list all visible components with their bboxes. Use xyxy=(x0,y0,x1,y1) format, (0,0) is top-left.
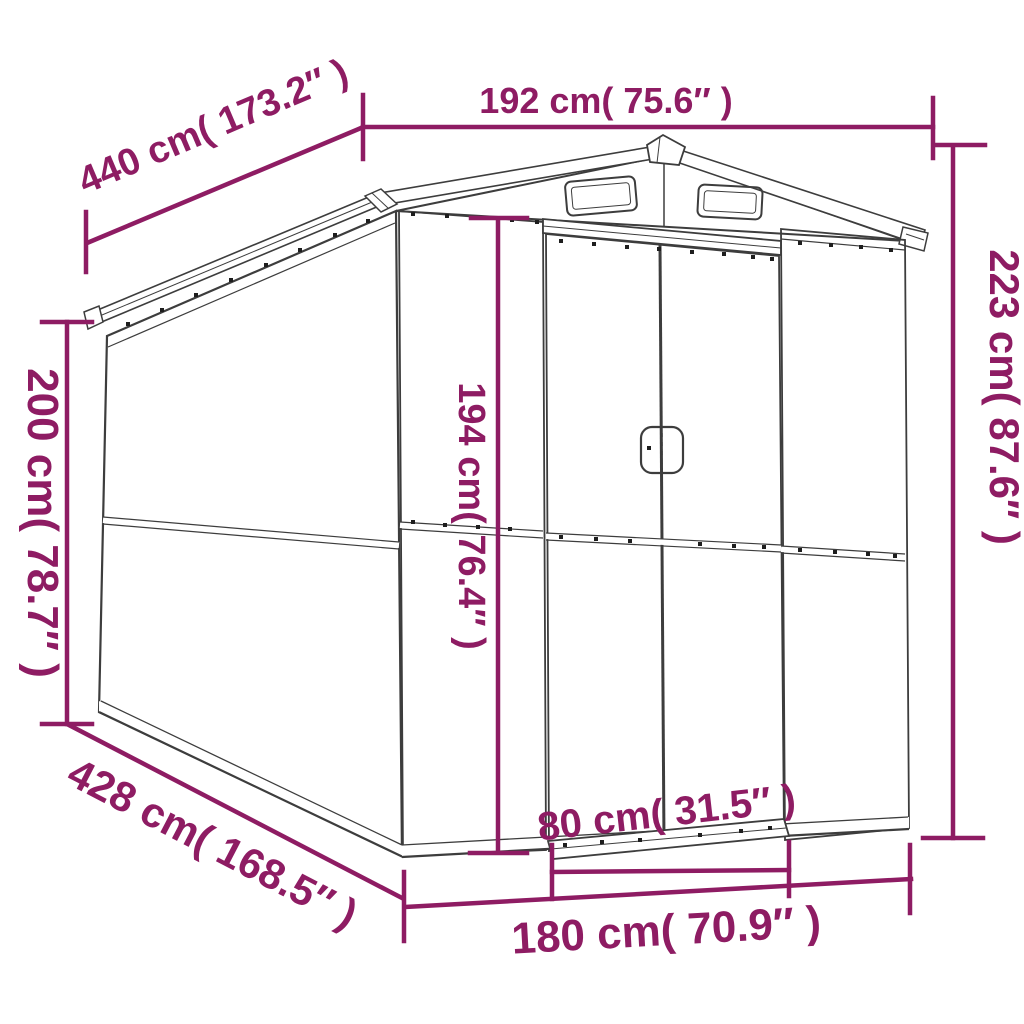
sliding-doors xyxy=(546,234,784,851)
back-eave-cap xyxy=(84,306,103,329)
shed-side-wall xyxy=(99,211,402,856)
label-base-length: 428 cm( 168.5″ ) xyxy=(60,749,365,938)
label-wall-height: 200 cm( 78.7″ ) xyxy=(18,368,67,678)
front-wall-right-section xyxy=(781,229,909,840)
dimension-overall-height: 223 cm( 87.6″ ) xyxy=(923,145,1024,838)
shed-drawing xyxy=(84,135,928,859)
label-base-width: 180 cm( 70.9″ ) xyxy=(510,897,822,963)
label-door-height: 194 cm( 76.4″ ) xyxy=(450,382,492,649)
label-roof-width-top: 192 cm( 75.6″ ) xyxy=(479,80,732,121)
label-roof-length: 440 cm( 173.2″ ) xyxy=(72,51,354,202)
shed-dimension-diagram: 192 cm( 75.6″ ) 440 cm( 173.2″ ) 223 cm(… xyxy=(0,0,1024,1024)
dimension-wall-height: 200 cm( 78.7″ ) xyxy=(18,322,92,724)
right-roof-vent xyxy=(697,184,763,219)
dimension-base-width: 180 cm( 70.9″ ) xyxy=(404,845,911,964)
shed-roof xyxy=(84,135,928,329)
left-roof-vent xyxy=(565,176,638,216)
dimension-door-height: 194 cm( 76.4″ ) xyxy=(450,218,527,853)
dimension-roof-length: 440 cm( 173.2″ ) xyxy=(72,51,361,272)
roof-finial xyxy=(647,135,685,165)
diagram-canvas: 192 cm( 75.6″ ) 440 cm( 173.2″ ) 223 cm(… xyxy=(0,0,1024,1024)
label-overall-height: 223 cm( 87.6″ ) xyxy=(981,249,1024,545)
